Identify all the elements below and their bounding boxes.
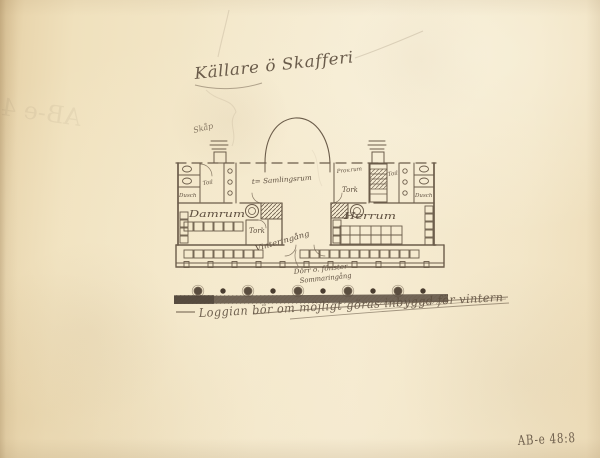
apse-arch: [265, 118, 330, 163]
pencil-drawing-layer: AB-e 48 Källare ö Skafferi Skåp: [0, 0, 600, 458]
label-herrum: Herrum: [343, 212, 396, 222]
archive-reference: AB-e 48:8: [517, 430, 577, 449]
stove-left: [246, 203, 283, 219]
label-toil-left: Toil: [202, 180, 213, 187]
label-provrum: Prov.rum: [336, 166, 363, 175]
cupboard-note: Skåp: [192, 121, 214, 135]
stair-run: [370, 164, 387, 202]
title-handwriting: Källare ö Skafferi: [192, 47, 354, 88]
title-underline-flourish: [195, 83, 262, 89]
label-dusch-right: Dusch: [414, 193, 433, 199]
bleed-through-ghost-text: AB-e 48: [0, 91, 84, 132]
chimney-left: [210, 141, 228, 163]
pencil-smudges: [206, 10, 423, 186]
label-hall: t= Samlingsrum: [252, 174, 313, 186]
wc-stalls-right: [403, 166, 434, 195]
chimney-right: [368, 141, 386, 163]
label-tork-left: Tork: [249, 227, 265, 235]
scanned-floor-plan-page: AB-e 48 Källare ö Skafferi Skåp: [0, 0, 600, 458]
plan-labels: t= Samlingsrum Damrum Herrum Tork Tork T…: [178, 166, 433, 253]
label-toil-right: Toil: [387, 171, 398, 178]
page-title: Källare ö Skafferi: [192, 47, 354, 83]
summer-entrance-note: Dörr o. fönster Sommaringång: [292, 250, 352, 285]
toilet-fixture-icon: [420, 166, 429, 172]
label-tork-right: Tork: [342, 186, 358, 194]
label-dusch-left: Dusch: [178, 193, 197, 199]
toilet-fixture-icon: [183, 166, 192, 172]
toilet-fixture-icon: [183, 178, 192, 184]
veranda: [176, 245, 444, 268]
veranda-benches: [184, 250, 419, 258]
floor-plan: t= Samlingsrum Damrum Herrum Tork Tork T…: [174, 118, 448, 304]
label-damrum: Damrum: [188, 210, 245, 220]
bottom-note-group: Loggian bör om möjligt göras inbyggd för…: [176, 290, 509, 320]
toilet-fixture-icon: [420, 178, 429, 184]
